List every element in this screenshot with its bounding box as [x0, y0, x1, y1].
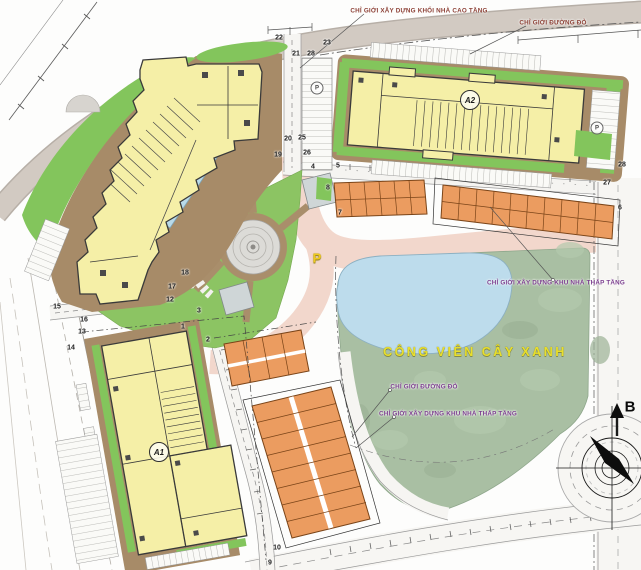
lawn-a2-southeast — [574, 130, 612, 160]
site-plan: CÔNG VIÊN CÂY XANH A2 A1 P P P B CHỈ GIỚ… — [0, 0, 641, 570]
parking-strip-center — [302, 58, 332, 170]
site-plan-drawing — [0, 0, 641, 570]
road-vertical-top — [284, 34, 301, 172]
